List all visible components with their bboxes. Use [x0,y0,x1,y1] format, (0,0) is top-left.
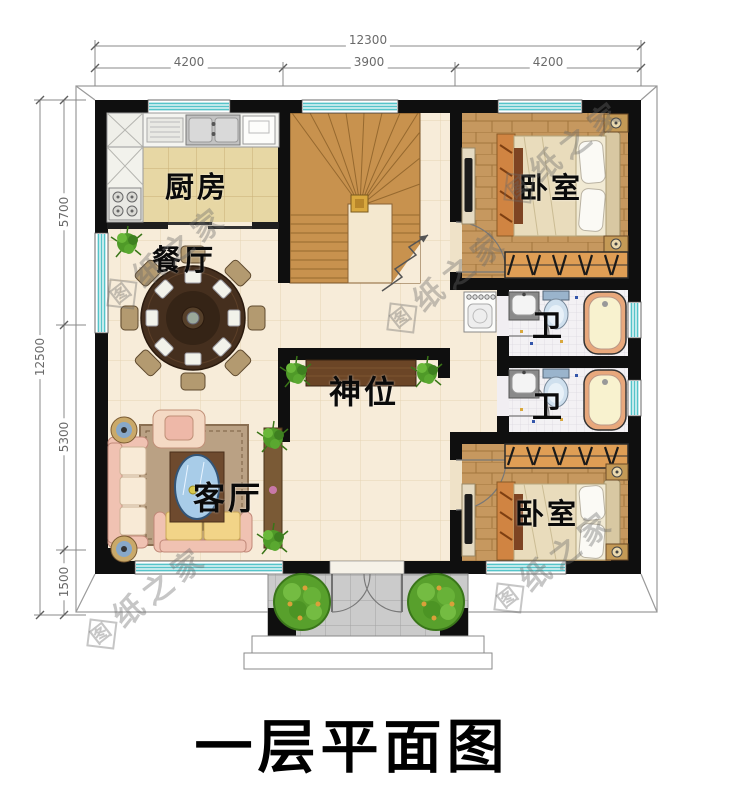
stove-icon [109,188,141,220]
bush-icon [408,574,464,630]
dim-left-total: 12500 [33,335,47,379]
dim-left-seg-2: 5300 [57,419,71,456]
page-title: 一层平面图 [194,700,509,784]
dim-top-seg-1: 4200 [171,55,208,69]
room-label-bedroom-bottom: 卧室 [515,491,579,533]
dim-left-seg-3: 1500 [57,564,71,601]
entrance-porch [244,561,492,669]
room-label-bath-top: 卫 [532,301,562,345]
washing-machine-icon [464,292,496,332]
wardrobe-top [505,252,628,278]
bush-icon [274,574,330,630]
kitchen-sliding-door [168,222,252,229]
staircase [290,113,428,291]
dim-top-seg-3: 4200 [530,55,567,69]
room-label-bath-bottom: 卫 [532,382,562,426]
room-label-shrine: 神位 [329,367,399,413]
room-label-living: 客厅 [193,473,263,519]
dim-top-seg-2: 3900 [351,55,388,69]
room-label-dining: 餐厅 [152,237,216,279]
floor-plan-page: 12300 4200 3900 4200 12500 5700 5300 150… [0,0,750,794]
dim-top-total: 12300 [346,33,390,47]
room-label-bedroom-top: 卧室 [519,165,583,207]
dim-left-seg-1: 5700 [57,194,71,231]
room-label-kitchen: 厨房 [165,164,229,206]
